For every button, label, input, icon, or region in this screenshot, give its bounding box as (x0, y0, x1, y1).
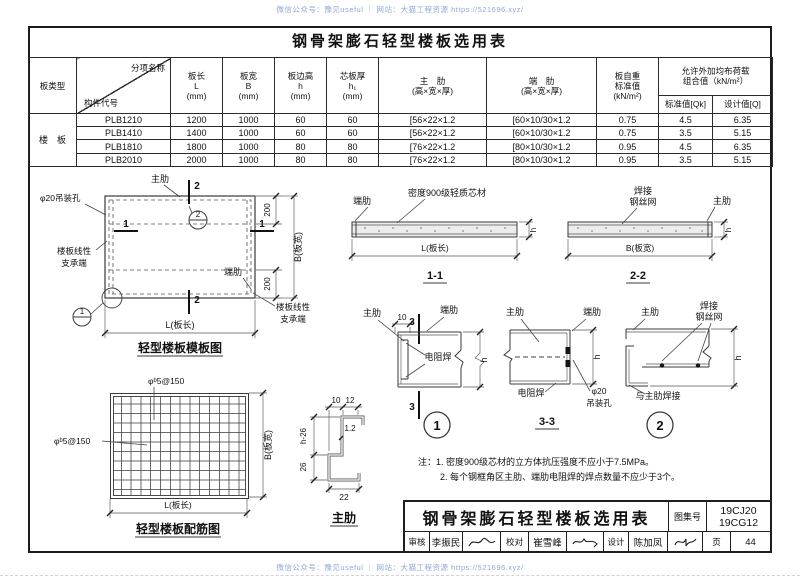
svg-text:h: h (724, 228, 733, 232)
scanned-drawing-page: 微信公众号：豫见useful ｜ 网站：大猫工程资源 https://52169… (0, 0, 800, 581)
dimension-length: L(板长) (349, 239, 520, 261)
svg-text:L(板长): L(板长) (166, 319, 195, 330)
table-row: PLB181018001000 8080[76×22×1.2 [80×10/30… (29, 140, 773, 153)
title-block-title: 钢骨架膨石轻型楼板选用表 (405, 502, 668, 531)
svg-text:楼板线性: 楼板线性 (276, 302, 311, 312)
svg-text:B(板宽): B(板宽) (626, 243, 655, 253)
header-std-value: 标准值[Qk] (659, 95, 713, 113)
svg-text:3: 3 (409, 402, 415, 413)
signature-scribble (671, 535, 699, 549)
reviewer-name: 李振民 (429, 532, 462, 552)
header-allow-load: 允许外加均布荷载组合值（kN/m²） (659, 58, 773, 96)
welded-mesh-label: 焊接 钢丝网 (622, 185, 657, 224)
rebar-dimensions: φᵇ5@150 φᵇ5@150 L(板长) B(板宽) 轻型楼板配筋图 (40, 368, 302, 544)
svg-text:10: 10 (398, 313, 407, 322)
header-item-name: 分项名称 (131, 63, 165, 73)
rebar-caption: 轻型楼板配筋图 (136, 521, 220, 536)
dimension-width: B(板宽) (565, 239, 715, 261)
reviewer-signature (462, 532, 500, 552)
section-2-2-diagram: 焊接 钢丝网 主肋 B(板宽) h 2-2 (550, 183, 772, 289)
header-design-value: 设计值[Q] (713, 95, 773, 113)
svg-text:φ20: φ20 (592, 386, 607, 396)
svg-text:吊装孔: 吊装孔 (586, 398, 612, 408)
header-core-thickness: 芯板厚h₁(mm) (327, 58, 379, 114)
svg-text:B(板宽): B(板宽) (262, 430, 273, 460)
signature-scribble (570, 535, 600, 549)
dimension-h: h (650, 326, 743, 389)
dimension-26: 26 (299, 455, 327, 483)
dimension-board-width: B(板宽) (282, 193, 303, 301)
atlas-number-label: 图集号 (668, 502, 706, 531)
dimension-h: h (519, 219, 538, 240)
dimension-width: B(板宽) (249, 390, 273, 500)
end-rib-label: 端肋 (583, 306, 601, 317)
svg-text:12: 12 (346, 396, 355, 405)
resistance-weld-label: 电阻焊 (424, 351, 451, 362)
svg-text:楼板线性: 楼板线性 (57, 246, 92, 256)
atlas-number-value: 19CJ2019CG12 (706, 502, 770, 531)
dimension-h-26: h-26 (299, 414, 340, 458)
svg-text:h: h (733, 355, 743, 360)
header-diagonal-cell: 分项名称 构件代号 (77, 58, 171, 114)
detail-number-circle: 1 (424, 412, 450, 438)
svg-text:2: 2 (196, 210, 201, 219)
svg-text:3: 3 (409, 317, 415, 328)
plan-caption: 轻型楼板模板图 (138, 340, 222, 355)
svg-text:焊接: 焊接 (700, 300, 718, 311)
svg-text:22: 22 (339, 492, 349, 502)
formwork-plan-diagram: 2 2 主肋 2 1 1 φ20吊装孔 楼板线性 支承端 1 (30, 170, 340, 362)
mesh-spec-left: φᵇ5@150 (54, 436, 91, 446)
svg-text:钢丝网: 钢丝网 (629, 196, 656, 207)
title-block: 钢骨架膨石轻型楼板选用表 图集号 19CJ2019CG12 审核 李振民 校对 … (403, 500, 772, 553)
dimension-200-bottom: 200 (256, 267, 282, 301)
detail-2-diagram: 主肋 焊接 钢丝网 与主肋焊接 h 2 (612, 298, 772, 450)
signature-scribble (466, 535, 498, 549)
rebar-layout-diagram: φᵇ5@150 φᵇ5@150 L(板长) B(板宽) 轻型楼板配筋图 (40, 368, 302, 544)
svg-text:焊接: 焊接 (634, 185, 652, 196)
main-rib-label: 主肋 (363, 307, 381, 318)
designer-name: 陈加凤 (628, 532, 667, 552)
scan-artifact-line (0, 575, 800, 576)
header-length: 板长L(mm) (171, 58, 223, 114)
svg-text:1: 1 (433, 418, 440, 433)
welded-mesh-label: 焊接 钢丝网 (662, 300, 723, 361)
support-end-label-left: 楼板线性 支承端 (57, 241, 107, 268)
page-number: 44 (730, 532, 770, 552)
main-rib-profile-diagram: 10 12 1.2 h-26 26 22 主肋 (292, 383, 404, 541)
svg-text:h: h (592, 354, 602, 359)
svg-text:10: 10 (332, 396, 341, 405)
mesh-spec-top: φᵇ5@150 (148, 376, 185, 386)
review-label: 审核 (405, 532, 429, 552)
end-rib-label: 端肋 (224, 266, 242, 277)
checker-name: 崔雪峰 (528, 532, 566, 552)
check-label: 校对 (500, 532, 528, 552)
svg-text:L(板长): L(板长) (421, 243, 449, 253)
lifting-hole-label: φ20吊装孔 (40, 193, 81, 203)
svg-text:200: 200 (263, 203, 272, 217)
main-rib-label: 主肋 (713, 195, 731, 206)
svg-text:1: 1 (80, 307, 85, 316)
slab-section (568, 222, 712, 237)
svg-text:2: 2 (656, 418, 663, 433)
design-label: 设计 (603, 532, 628, 552)
svg-text:200: 200 (263, 277, 272, 291)
header-member-code: 构件代号 (84, 98, 118, 108)
cut-2-top-label: 2 (194, 181, 200, 192)
notes: 注：1. 密度900级芯材的立方体抗压强度不应小于7.5MPa。 2. 每个钢框… (418, 455, 768, 485)
dimension-h: h (714, 219, 733, 240)
svg-text:1: 1 (123, 219, 129, 230)
table-row: PLB141014001000 6060[56×22×1.2 [60×10/30… (29, 127, 773, 140)
row-group-floor: 楼 板 (29, 114, 77, 167)
detail-bubble-1: 1 (73, 303, 103, 326)
section-3-3-diagram: 主肋 端肋 h 电阻焊 φ20 吊装孔 3-3 (493, 298, 621, 440)
table-row: PLB201020001000 8080[76×22×1.2 [80×10/30… (29, 153, 773, 166)
plan-outline (105, 196, 255, 298)
selection-table: 板类型 分项名称 构件代号 板长L(mm) 板宽B(mm) 板边高h(mm) 芯… (28, 57, 773, 167)
main-rib-label: 主肋 (506, 306, 524, 317)
slab-section (352, 222, 517, 237)
page-title: 钢骨架膨石轻型楼板选用表 (28, 26, 772, 57)
cut-2-bottom-label: 2 (194, 295, 200, 306)
header-end-rib: 端 肋(高×宽×厚) (487, 58, 597, 114)
rib-section-profile (504, 330, 571, 384)
svg-text:h: h (529, 228, 538, 232)
designer-signature (667, 532, 702, 552)
main-rib-label: 主肋 (151, 173, 169, 184)
svg-text:h: h (479, 357, 489, 362)
header-width: 板宽B(mm) (223, 58, 275, 114)
svg-text:钢丝网: 钢丝网 (695, 311, 722, 322)
watermark-top: 微信公众号：豫见useful ｜ 网站：大猫工程资源 https://52169… (0, 4, 800, 15)
support-end-label-right: 楼板线性 支承端 (253, 293, 310, 324)
svg-text:h-26: h-26 (299, 427, 308, 444)
header-edge-height: 板边高h(mm) (275, 58, 327, 114)
dimension-h: h (463, 329, 489, 390)
note-line-2: 2. 每个钢框角区主肋、端肋电阻焊的焊点数量不应少于3个。 (440, 470, 768, 485)
svg-text:B(板宽): B(板宽) (292, 232, 303, 262)
dimension-board-length: L(板长) (102, 300, 258, 338)
note-line-1: 注：1. 密度900级芯材的立方体抗压强度不应小于7.5MPa。 (418, 455, 768, 470)
svg-text:支承端: 支承端 (280, 314, 306, 324)
resistance-weld-label: 电阻焊 (517, 387, 544, 398)
core-material-label: 密度900级轻质芯材 (408, 187, 486, 198)
weld-to-main-rib-label: 与主肋焊接 (635, 390, 680, 401)
section-cut-1-marks: 1 1 (114, 219, 274, 231)
detail-number-circle: 2 (647, 412, 673, 438)
end-rib-label: 端肋 (353, 195, 371, 206)
section-1-1-diagram: 端肋 密度900级轻质芯材 L(板长) h 1-1 (335, 183, 550, 289)
header-self-weight: 板自重标准值(kN/m²) (597, 58, 659, 114)
checker-signature (566, 532, 603, 552)
svg-text:26: 26 (299, 462, 308, 471)
dimension-h: h (572, 327, 602, 387)
svg-text:1: 1 (259, 219, 265, 230)
section-cut-3-marks: 3 3 (409, 314, 419, 419)
rib-profile-caption: 主肋 (332, 510, 356, 525)
rib-mesh-profile (626, 329, 711, 386)
end-rib-label: 端肋 (440, 304, 458, 315)
header-main-rib: 主 肋(高×宽×厚) (379, 58, 487, 114)
dimension-22: 22 (326, 483, 362, 502)
section-caption: 3-3 (539, 416, 555, 428)
table-row: 楼 板 PLB121012001000 6060[56×22×1.2 [60×1… (29, 114, 773, 127)
page-label: 页 (702, 532, 730, 552)
main-rib-label: 主肋 (641, 306, 659, 317)
thickness-label: 1.2 (344, 424, 356, 433)
section-caption: 2-2 (630, 270, 646, 282)
watermark-bottom: 微信公众号：豫见useful ｜ 网站：大猫工程资源 https://52169… (0, 562, 800, 573)
dimension-length: L(板长) (107, 499, 250, 518)
section-caption: 1-1 (427, 270, 443, 282)
detail-bubble-2: 2 (189, 206, 207, 229)
header-board-type: 板类型 (29, 58, 77, 114)
svg-text:L(板长): L(板长) (164, 500, 192, 510)
svg-text:支承端: 支承端 (61, 258, 87, 268)
